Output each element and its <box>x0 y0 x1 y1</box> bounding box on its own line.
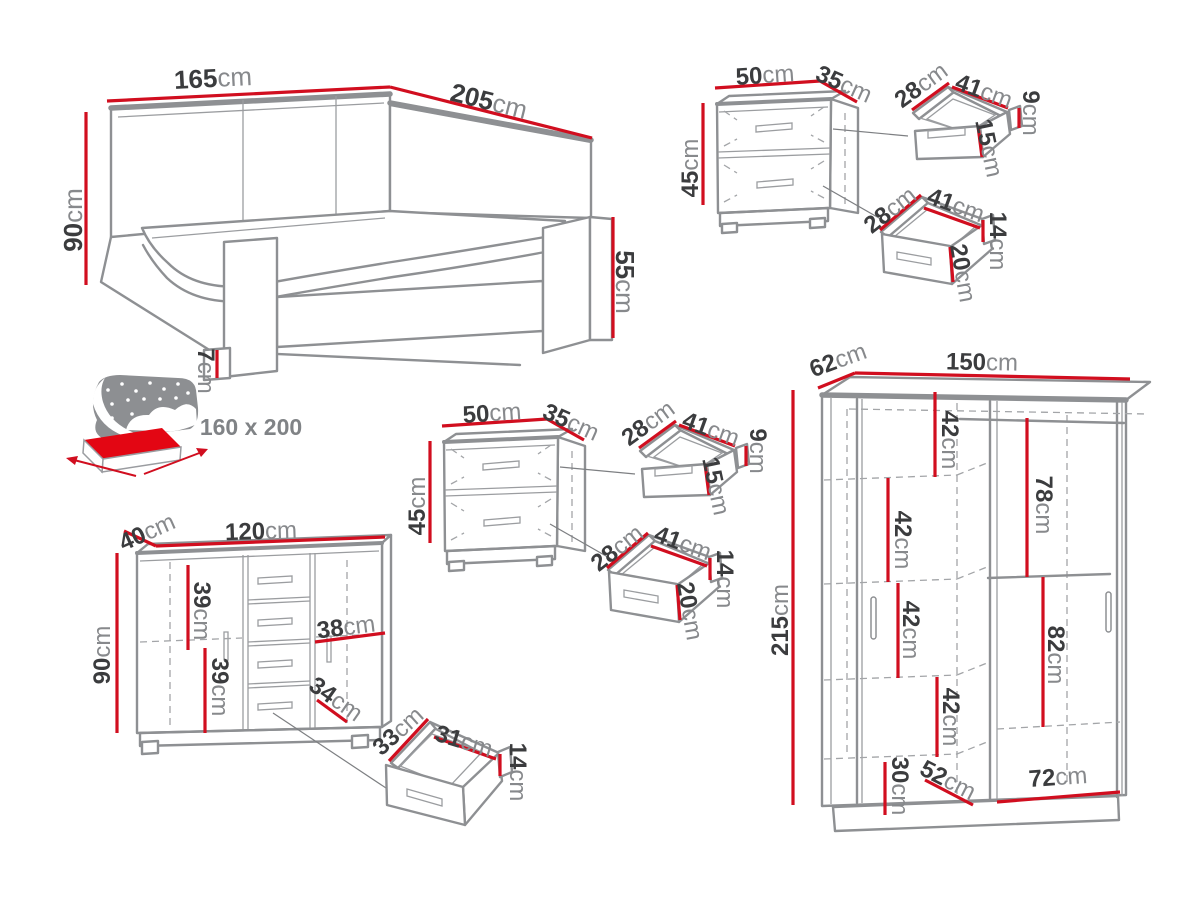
mattress-size-label: 160 x 200 <box>200 414 302 440</box>
furniture-dimension-diagram: 165cm 205cm 90cm 55cm 7cm 160 x 200 <box>0 0 1200 900</box>
wardrobe-right-door-handle <box>1106 592 1111 632</box>
chest-width-label: 120cm <box>225 516 298 545</box>
ns2-height-label: 45cm <box>404 477 431 536</box>
wardrobe-left-door-handle <box>871 597 876 639</box>
chest-drawer-front-height-label: 14cm <box>505 743 532 802</box>
chest-of-drawers-diagram: 40cm 120cm 90cm 39cm 39cm 38cm 34cm 33cm… <box>89 508 532 825</box>
chest-upper-shelf-label: 39cm <box>189 582 216 641</box>
chest-side <box>382 535 391 727</box>
diagram-canvas: 165cm 205cm 90cm 55cm 7cm 160 x 200 <box>0 0 1200 900</box>
bed-diagram: 165cm 205cm 90cm 55cm 7cm <box>58 61 640 394</box>
ns1-height-label: 45cm <box>677 139 704 198</box>
wardrobe-width-label: 150cm <box>946 348 1019 376</box>
wardrobe-right-width-label: 72cm <box>1028 761 1088 792</box>
bed-size-icon: 160 x 200 <box>66 375 302 476</box>
wardrobe-height-label: 215cm <box>767 584 794 656</box>
bed-headboard-height-label: 90cm <box>58 188 88 252</box>
bed-foot-post-right <box>543 217 590 353</box>
wardrobe-bottom-shelf-label: 30cm <box>887 757 914 816</box>
ns2-drawer-bottom-back-height-label: 14cm <box>712 550 739 609</box>
wardrobe-shelf1-label: 42cm <box>937 411 964 470</box>
bed-foot-post-left <box>224 238 277 377</box>
chest-drawer-width-label: 31cm <box>432 720 496 763</box>
ns1-drawer-bottom-back-height-label: 14cm <box>985 212 1012 271</box>
wardrobe-bottom-hanging-label: 82cm <box>1043 626 1070 685</box>
ns2-drawer-top-back-height-label: 9cm <box>745 428 772 473</box>
bed-leg-height-label: 7cm <box>193 348 220 393</box>
chest-lower-shelf-label: 39cm <box>207 658 234 717</box>
wardrobe-front <box>822 395 1126 806</box>
ns2-width-label: 50cm <box>462 397 522 428</box>
wardrobe-diagram: 62cm 150cm 215cm 42cm 78cm 42cm 42cm 42c… <box>767 337 1151 831</box>
ns1-width-label: 50cm <box>735 59 795 90</box>
bed-width-label: 165cm <box>173 61 253 95</box>
wardrobe-shelf3-label: 42cm <box>898 601 925 660</box>
ns1-drawer-top-back-height-label: 9cm <box>1018 90 1045 135</box>
wardrobe-depth-label: 62cm <box>806 337 870 382</box>
wardrobe-shelf2-label: 42cm <box>890 511 917 570</box>
wardrobe-top-hanging-label: 78cm <box>1031 476 1058 535</box>
chest-height-label: 90cm <box>89 626 116 685</box>
bed-footboard-height-label: 55cm <box>610 250 640 314</box>
wardrobe-shelf4-label: 42cm <box>938 688 965 747</box>
nightstand-side <box>830 99 858 213</box>
